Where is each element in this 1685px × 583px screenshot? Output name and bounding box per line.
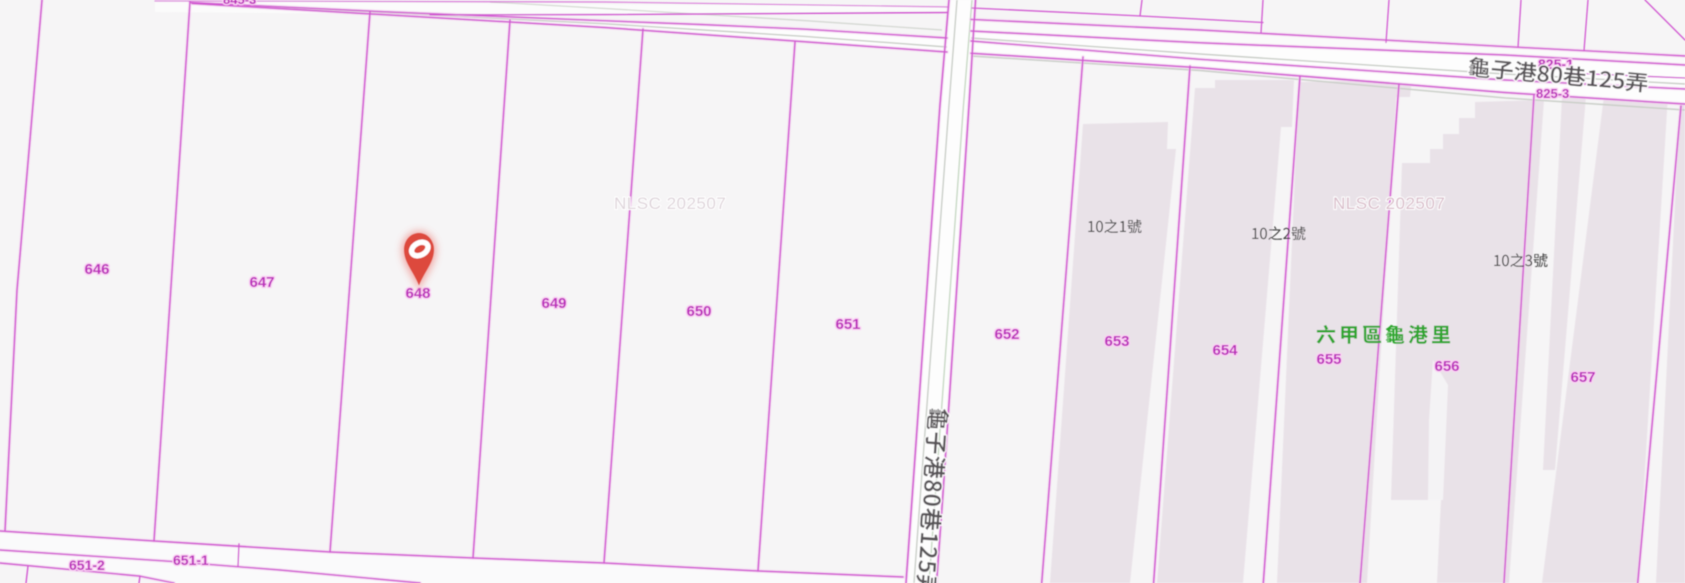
svg-text:651-2: 651-2	[69, 557, 105, 573]
svg-text:647: 647	[249, 274, 274, 291]
svg-text:651-1: 651-1	[173, 552, 209, 568]
svg-text:652: 652	[994, 326, 1019, 343]
svg-text:NLSC 202507: NLSC 202507	[1333, 194, 1445, 213]
svg-text:646: 646	[84, 261, 109, 278]
svg-text:654: 654	[1212, 342, 1238, 359]
svg-text:656: 656	[1434, 358, 1459, 375]
svg-text:655: 655	[1316, 351, 1341, 368]
svg-text:653: 653	[1104, 333, 1129, 350]
svg-text:651: 651	[835, 316, 860, 333]
svg-text:649: 649	[541, 295, 566, 312]
svg-text:845-3: 845-3	[223, 0, 256, 7]
svg-text:NLSC 202507: NLSC 202507	[614, 194, 726, 213]
svg-text:657: 657	[1570, 369, 1595, 386]
svg-text:825-3: 825-3	[1536, 86, 1569, 101]
svg-text:650: 650	[686, 303, 711, 320]
